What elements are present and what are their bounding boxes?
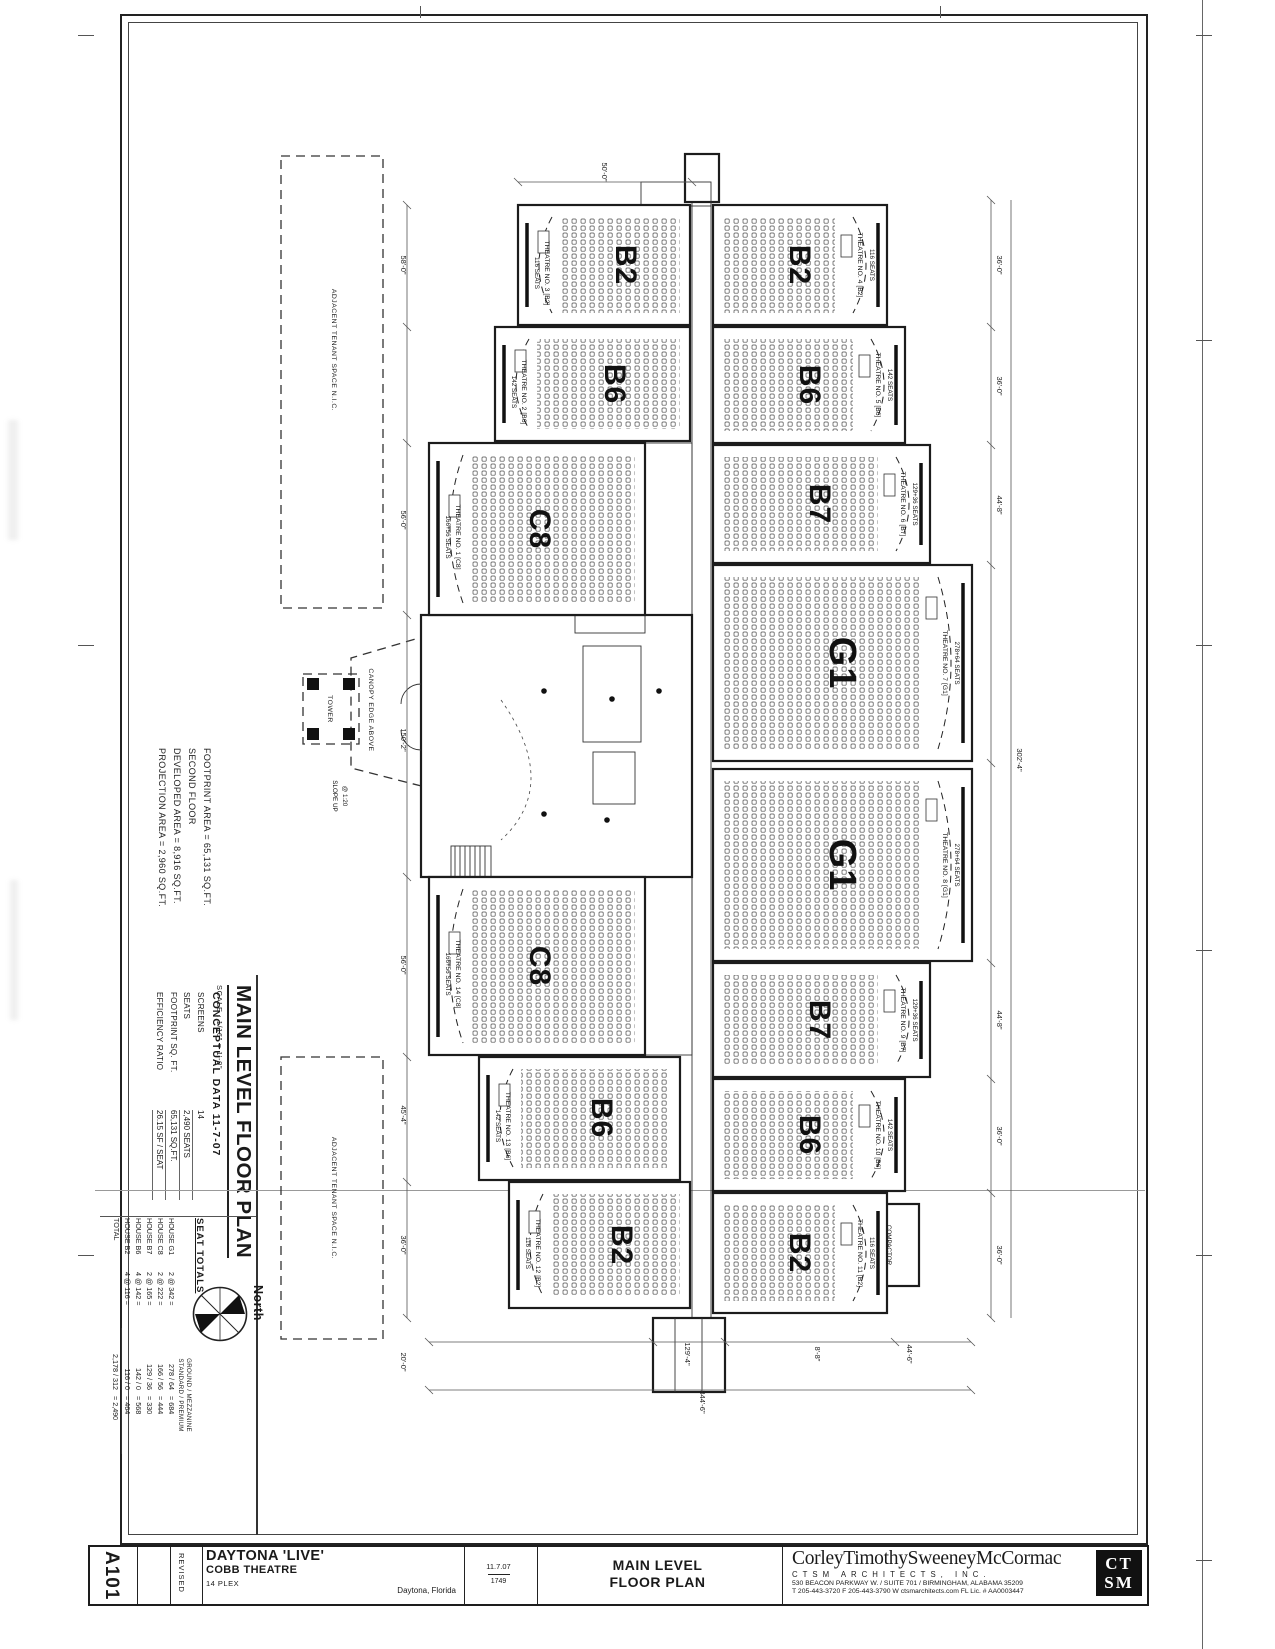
north-block: North — [186, 1285, 265, 1365]
issue-date: 11.7.07 — [486, 1562, 510, 1571]
lobby-column — [541, 811, 547, 817]
project-name-block: DAYTONA 'LIVE' COBB THEATRE 14 PLEX — [206, 1548, 324, 1588]
dim-label: 8'-8" — [813, 1347, 822, 1362]
house-count: 4 @ 142 = — [133, 1272, 144, 1328]
seat-row: HOUSE C8 2 @ 222 = 166 / 56 = 444 — [155, 1218, 166, 1486]
svg-text:142 SEATS: 142 SEATS — [886, 369, 893, 401]
svg-text:THEATRE NO. 8 [G1]: THEATRE NO. 8 [G1] — [941, 832, 948, 898]
seat-row: HOUSE B2 4 @ 116 = 116 / 0 = 464 — [122, 1218, 133, 1486]
house-split: 278 / 64 — [166, 1328, 177, 1396]
house-name: HOUSE B6 — [133, 1218, 144, 1272]
registration-tick — [940, 6, 941, 18]
dim-label: 20'-0" — [399, 1352, 408, 1371]
tower-label: TOWER — [326, 695, 333, 723]
seat-total-row: TOTAL 2,178 / 312 = 2,490 — [110, 1218, 122, 1486]
dim-label: 56'-0" — [399, 510, 408, 529]
theatre-1: THEATRE NO. 1 [C8] 166+56 SEATS C8 — [429, 443, 645, 615]
scan-smudge — [10, 880, 18, 1020]
svg-text:THEATRE NO. 1 [C8]: THEATRE NO. 1 [C8] — [454, 504, 461, 569]
svg-text:116 SEATS: 116 SEATS — [868, 1237, 875, 1269]
architect-firm: CTSM ARCHITECTS, INC. — [792, 1570, 1092, 1579]
canopy-tower: TOWER CANOPY EDGE ABOVE — [303, 635, 429, 788]
house-split: 166 / 56 — [155, 1328, 166, 1396]
house-count: 2 @ 222 = — [155, 1272, 166, 1328]
lobby-column — [609, 696, 615, 702]
svg-text:278+64 SEATS: 278+64 SEATS — [953, 843, 960, 886]
svg-text:B2: B2 — [783, 245, 816, 285]
lobby — [401, 595, 692, 878]
registration-tick — [1196, 950, 1212, 951]
house-count: 4 @ 116 = — [122, 1272, 133, 1328]
plan-title: MAIN LEVEL FLOOR PLAN — [227, 985, 255, 1258]
tower-column — [343, 678, 355, 690]
project-name: DAYTONA 'LIVE' — [206, 1548, 324, 1564]
svg-text:142 SEATS: 142 SEATS — [510, 376, 517, 408]
theatre-7: THEATRE NO. 7 [G1] 278+64 SEATS G1 — [713, 565, 972, 761]
dim-label: 344'-6" — [698, 1390, 707, 1414]
svg-text:142 SEATS: 142 SEATS — [494, 1110, 501, 1142]
house-total: = 684 — [166, 1396, 177, 1454]
house-total: = 464 — [122, 1396, 133, 1454]
svg-text:G1: G1 — [821, 637, 863, 690]
svg-text:C8: C8 — [523, 946, 556, 986]
svg-text:166+56 SEATS: 166+56 SEATS — [444, 952, 451, 995]
registration-tick — [78, 1255, 94, 1256]
seat-header-standard-premium: STANDARD / PREMIUM — [177, 1330, 185, 1460]
svg-text:B2: B2 — [609, 245, 642, 285]
svg-text:129+36 SEATS: 129+36 SEATS — [911, 998, 918, 1041]
svg-text:116 SEATS: 116 SEATS — [524, 1237, 531, 1269]
house-name: HOUSE B7 — [144, 1218, 155, 1272]
tower-column — [307, 678, 319, 690]
dim-label: 50'-0" — [600, 162, 609, 181]
titleblock-divider — [202, 1547, 203, 1604]
conceptual-value: 65,131 SQ.FT. — [166, 1110, 180, 1200]
theatre-6: THEATRE NO. 6 [B7] 129+36 SEATS B7 — [713, 445, 930, 563]
theatre-12: THEATRE NO. 12 [B2] 116 SEATS B2 — [509, 1182, 690, 1308]
house-count: 2 @ 342 = — [166, 1272, 177, 1328]
theatre-9: THEATRE NO. 9 [B7] 129+36 SEATS B7 — [713, 963, 930, 1077]
north-arrow-icon — [191, 1285, 249, 1343]
svg-text:B2: B2 — [605, 1225, 638, 1265]
total-value: = 2,490 — [110, 1396, 122, 1454]
tower-column — [307, 728, 319, 740]
svg-text:THEATRE NO. 6 [B7]: THEATRE NO. 6 [B7] — [899, 472, 906, 537]
theatre-8: THEATRE NO. 8 [G1] 278+64 SEATS G1 — [713, 769, 972, 961]
total-split: 2,178 / 312 — [110, 1328, 122, 1396]
svg-text:@ 1:20: @ 1:20 — [341, 786, 348, 807]
svg-text:THEATRE NO. 13 [B6]: THEATRE NO. 13 [B6] — [504, 1092, 511, 1161]
svg-text:THEATRE NO. 7 [G1]: THEATRE NO. 7 [G1] — [941, 630, 948, 696]
house-total: = 568 — [133, 1396, 144, 1454]
dim-label: 129'-4" — [683, 1342, 692, 1366]
conceptual-value: 14 — [193, 1110, 207, 1200]
svg-text:C8: C8 — [523, 509, 556, 549]
architect-name: CorleyTimothySweeneyMcCormac — [792, 1548, 1092, 1570]
dim-label: 56'-0" — [399, 955, 408, 974]
sheet-title-line1: MAIN LEVEL — [613, 1557, 703, 1574]
svg-text:129+36 SEATS: 129+36 SEATS — [911, 482, 918, 525]
entry-door-swing — [401, 684, 421, 704]
svg-text:THEATRE NO. 3 [B2]: THEATRE NO. 3 [B2] — [543, 241, 550, 306]
conceptual-value: 2,490 SEATS — [179, 1110, 193, 1200]
dim-label: 58'-0" — [399, 255, 408, 274]
sheet-title: MAIN LEVEL FLOOR PLAN — [535, 1545, 780, 1602]
date-cell: 11.7.07 1749 — [462, 1545, 535, 1602]
titleblock-divider — [137, 1547, 138, 1604]
registration-tick — [1196, 340, 1212, 341]
sheet-number: A101 — [100, 1551, 122, 1599]
architect-contact: T 205-443-3720 F 205-443-3790 W ctsmarch… — [792, 1588, 1092, 1595]
svg-text:278+64 SEATS: 278+64 SEATS — [953, 641, 960, 684]
svg-text:THEATRE NO. 10 [B6]: THEATRE NO. 10 [B6] — [874, 1101, 881, 1170]
svg-text:G1: G1 — [821, 839, 863, 892]
spacer — [110, 1272, 122, 1328]
date-divider — [488, 1574, 510, 1575]
registration-tick — [1196, 645, 1212, 646]
total-label: TOTAL — [110, 1218, 122, 1272]
slope-note: SLOPE UP @ 1:20 — [331, 780, 348, 812]
theatre-4: THEATRE NO. 4 [B2] 116 SEATS B2 — [713, 205, 887, 325]
svg-text:B6: B6 — [793, 365, 826, 405]
dim-label: 36'-0" — [399, 1235, 408, 1254]
project-location: Daytona, Florida — [356, 1586, 456, 1595]
panel-divider — [100, 1216, 256, 1217]
house-name: HOUSE B2 — [122, 1218, 133, 1272]
svg-text:THEATRE NO. 14 [C8]: THEATRE NO. 14 [C8] — [454, 940, 461, 1009]
seat-row: HOUSE B6 4 @ 142 = 142 / 0 = 568 — [133, 1218, 144, 1486]
conceptual-label: SEATS — [179, 992, 193, 1110]
svg-text:THEATRE NO. 11 [B2]: THEATRE NO. 11 [B2] — [856, 1219, 863, 1287]
svg-text:B6: B6 — [585, 1098, 618, 1138]
dim-label: 36'-0" — [995, 1245, 1004, 1264]
adjacent-tenant-space-top: ADJACENT TENANT SPACE N.I.C. — [281, 156, 383, 608]
svg-text:116 SEATS: 116 SEATS — [868, 249, 875, 281]
ctsm-logo: CT SM — [1096, 1550, 1142, 1596]
svg-text:B6: B6 — [598, 364, 631, 404]
titleblock-divider — [782, 1547, 783, 1604]
svg-text:ADJACENT TENANT SPACE N.I.C.: ADJACENT TENANT SPACE N.I.C. — [330, 1137, 337, 1259]
registration-tick — [78, 645, 94, 646]
registration-tick — [1196, 1255, 1212, 1256]
titleblock-divider — [170, 1547, 171, 1604]
conceptual-title: CONCEPTUAL DATA 11-7-07 — [210, 992, 222, 1292]
house-split: 116 / 0 — [122, 1328, 133, 1396]
svg-text:THEATRE NO. 12 [B2]: THEATRE NO. 12 [B2] — [534, 1219, 541, 1288]
theatre-13: THEATRE NO. 13 [B6] 142 SEATS B6 — [479, 1057, 680, 1180]
canopy-label: CANOPY EDGE ABOVE — [367, 668, 374, 751]
svg-text:B7: B7 — [803, 1000, 836, 1040]
conceptual-value: 26.15 SF / SEAT — [152, 1110, 166, 1200]
registration-tick — [1196, 35, 1212, 36]
sheet-edge-line — [1202, 0, 1203, 1649]
project-type: 14 PLEX — [206, 1579, 324, 1588]
dim-label: 44'-6" — [905, 1344, 914, 1363]
svg-text:THEATRE NO. 9 [B7]: THEATRE NO. 9 [B7] — [899, 988, 906, 1053]
registration-tick — [78, 35, 94, 36]
svg-text:THEATRE NO. 4 [B2]: THEATRE NO. 4 [B2] — [856, 233, 863, 298]
conceptual-label: SCREENS — [193, 992, 207, 1110]
logo-top: CT — [1096, 1554, 1142, 1573]
adjacent-tenant-space-bottom: ADJACENT TENANT SPACE N.I.C. — [281, 1057, 383, 1339]
svg-text:B6: B6 — [793, 1115, 826, 1155]
floor-plan-svg: ADJACENT TENANT SPACE N.I.C. ADJACENT TE… — [255, 50, 1145, 1490]
tower-column — [343, 728, 355, 740]
house-name: HOUSE C8 — [155, 1218, 166, 1272]
dim-label: 150'-2" — [399, 728, 408, 752]
top-exit-vestibule — [685, 154, 719, 202]
lobby-column — [604, 817, 610, 823]
architect-block: CorleyTimothySweeneyMcCormac CTSM ARCHIT… — [792, 1548, 1092, 1595]
lobby-column — [656, 688, 662, 694]
dim-label: 36'-0" — [995, 1126, 1004, 1145]
dim-label: 36'-0" — [995, 255, 1004, 274]
house-count: 2 @ 165 = — [144, 1272, 155, 1328]
svg-text:142 SEATS: 142 SEATS — [886, 1119, 893, 1151]
sheet-title-line2: FLOOR PLAN — [610, 1574, 706, 1591]
scan-smudge — [8, 420, 18, 540]
project-building: COBB THEATRE — [206, 1564, 324, 1576]
revised-label: REVISED — [177, 1553, 186, 1599]
svg-text:ADJACENT TENANT SPACE N.I.C.: ADJACENT TENANT SPACE N.I.C. — [330, 289, 337, 411]
theatre-11: THEATRE NO. 11 [B2] 116 SEATS B2 — [713, 1193, 887, 1313]
seat-row: HOUSE B7 2 @ 165 = 129 / 36 = 330 — [144, 1218, 155, 1486]
svg-text:SLOPE UP: SLOPE UP — [331, 780, 338, 812]
dim-label: 36'-0" — [995, 376, 1004, 395]
house-total: = 444 — [155, 1396, 166, 1454]
house-name: HOUSE G1 — [166, 1218, 177, 1272]
registration-tick — [1196, 1560, 1212, 1561]
dim-label: 44'-8" — [995, 495, 1004, 514]
svg-text:116 SEATS: 116 SEATS — [533, 257, 540, 289]
svg-text:B2: B2 — [783, 1233, 816, 1273]
dim-label: 302'-4" — [1015, 748, 1024, 772]
svg-text:166+56 SEATS: 166+56 SEATS — [444, 515, 451, 558]
theatre-5: THEATRE NO. 5 [B6] 142 SEATS B6 — [713, 327, 905, 443]
lobby-column — [541, 688, 547, 694]
conceptual-label: FOOTPRINT SQ. FT. — [166, 992, 180, 1110]
house-split: 129 / 36 — [144, 1328, 155, 1396]
architect-address: 530 BEACON PARKWAY W. / SUITE 701 / BIRM… — [792, 1580, 1092, 1587]
theatre-3: THEATRE NO. 3 [B2] 116 SEATS B2 — [518, 205, 690, 325]
drawing-sheet: FOOTPRINT AREA = 65,131 SQ.FT. SECOND FL… — [0, 0, 1275, 1649]
theatre-2: THEATRE NO. 2 [B6] 142 SEATS B6 — [495, 327, 690, 441]
svg-text:THEATRE NO. 5 [B6]: THEATRE NO. 5 [B6] — [874, 353, 881, 418]
theatre-10: THEATRE NO. 10 [B6] 142 SEATS B6 — [713, 1079, 905, 1191]
dim-label: 44'-8" — [995, 1010, 1004, 1029]
dim-label: 45'-4" — [399, 1105, 408, 1124]
conceptual-label: EFFICIENCY RATIO — [152, 992, 166, 1110]
job-number: 1749 — [491, 1578, 507, 1585]
svg-text:B7: B7 — [803, 484, 836, 524]
svg-text:THEATRE NO. 2 [B6]: THEATRE NO. 2 [B6] — [520, 360, 527, 425]
theatre-14: THEATRE NO. 14 [C8] 166+56 SEATS C8 — [429, 877, 645, 1055]
registration-tick — [420, 6, 421, 18]
logo-bottom: SM — [1096, 1573, 1142, 1592]
seat-row: HOUSE G1 2 @ 342 = 278 / 64 = 684 — [166, 1218, 177, 1486]
house-total: = 330 — [144, 1396, 155, 1454]
house-split: 142 / 0 — [133, 1328, 144, 1396]
